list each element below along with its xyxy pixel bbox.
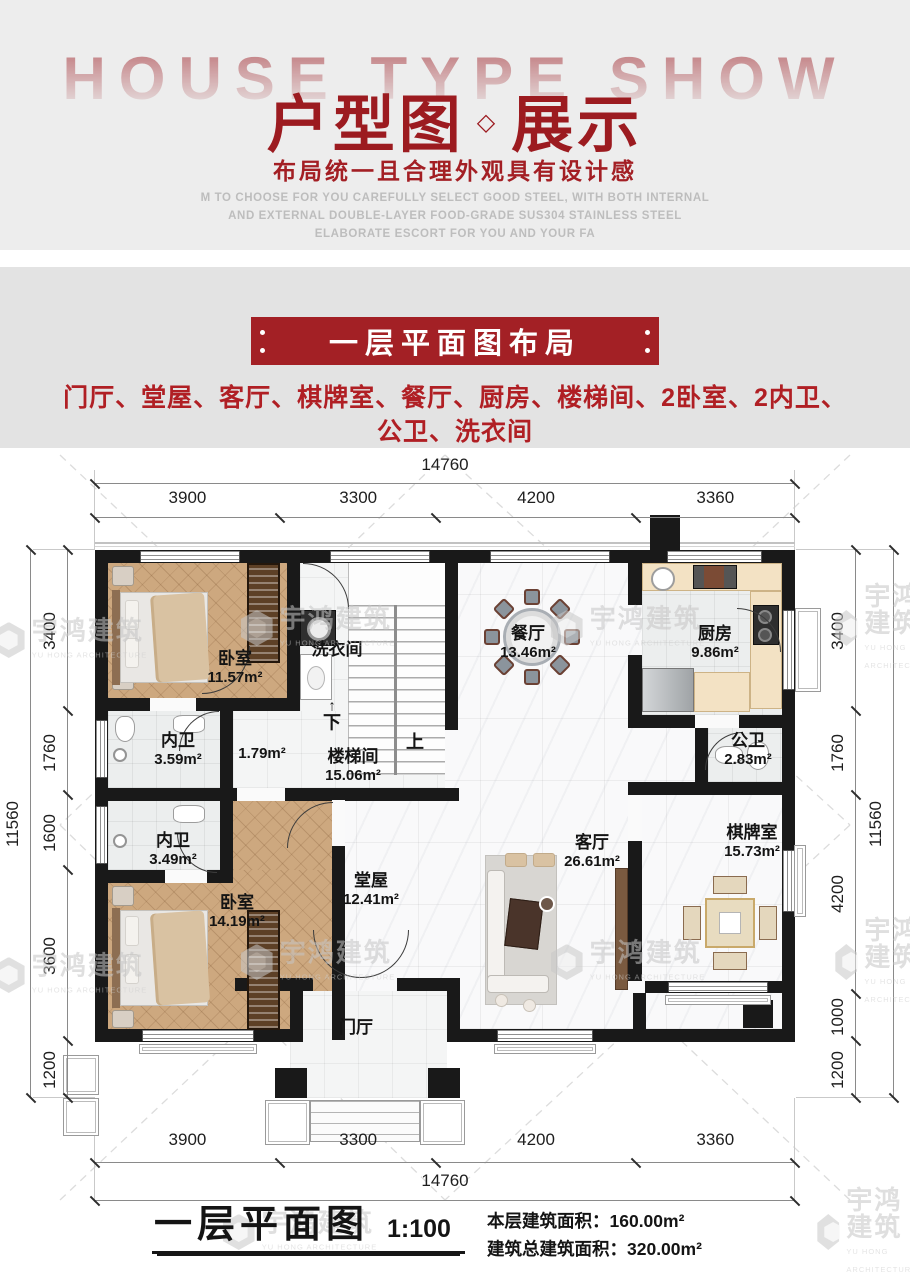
room-name: 卧室 xyxy=(207,649,262,669)
side-table xyxy=(539,896,555,912)
window xyxy=(497,1030,593,1041)
room-label-foyer: 门厅 xyxy=(339,1018,373,1038)
dim-value: 3300 xyxy=(339,1130,377,1150)
extension-line xyxy=(33,549,95,550)
room-area: 9.86m² xyxy=(691,644,739,662)
mahjong-chair xyxy=(759,906,777,940)
dim-line xyxy=(95,1162,795,1163)
room-area: 13.46m² xyxy=(500,644,556,662)
total-area-line: 建筑总建筑面积：320.00m² xyxy=(487,1235,702,1263)
poster-page: HOUSE TYPE SHOW 户型图◇展示 布局统一且合理外观具有设计感 M … xyxy=(0,0,910,1283)
eave-line xyxy=(95,542,795,544)
dim-value: 3300 xyxy=(339,488,377,508)
dim-overall-top: 14760 xyxy=(421,455,468,475)
page-title: 户型图◇展示 xyxy=(0,74,910,164)
mahjong-chair xyxy=(713,952,747,970)
dim-line xyxy=(95,483,795,484)
room-area: 3.59m² xyxy=(154,751,202,769)
window xyxy=(668,982,768,992)
room-label-hall_main: 堂屋12.41m² xyxy=(343,871,399,909)
english-tagline: M TO CHOOSE FOR YOU CAREFULLY SELECT GOO… xyxy=(0,190,910,243)
room-area: 12.41m² xyxy=(343,891,399,909)
bed-headboard xyxy=(112,908,120,1008)
shower-head xyxy=(113,748,127,762)
room-name: 客厅 xyxy=(564,833,620,853)
room-name: 楼梯间 xyxy=(325,747,381,767)
door-opening xyxy=(150,698,196,711)
wall xyxy=(275,1068,307,1098)
blanket xyxy=(150,910,210,1006)
title-part1: 户型图 xyxy=(267,91,465,160)
dim-value: 1200 xyxy=(40,1051,60,1089)
wall xyxy=(445,550,458,730)
watermark-cn: 宇鸿建筑 xyxy=(864,915,910,972)
wall xyxy=(447,991,460,1042)
dim-overall-bottom: 14760 xyxy=(421,1171,468,1191)
kitchen-counter xyxy=(694,672,750,712)
mahjong-chair xyxy=(683,906,701,940)
pillow xyxy=(125,638,139,668)
english-line: M TO CHOOSE FOR YOU CAREFULLY SELECT GOO… xyxy=(0,190,910,208)
up-arrow-icon: ↑ xyxy=(323,699,341,714)
watermark: 宇鸿建筑YU HONG ARCHITECTURE xyxy=(835,917,910,1007)
floor-plan: 卧室11.57m²洗衣间内卫3.59m²1.79m²楼梯间15.06m²餐厅13… xyxy=(95,550,795,1195)
pouf xyxy=(495,994,508,1007)
extension-line xyxy=(796,549,894,550)
mahjong-chair xyxy=(713,876,747,894)
dining-chair xyxy=(524,669,540,685)
diamond-icon: ◇ xyxy=(465,109,511,136)
english-line: AND EXTERNAL DOUBLE-LAYER FOOD-GRADE SUS… xyxy=(0,208,910,226)
laundry-sink-basin xyxy=(307,666,325,690)
hexagon-logo-icon xyxy=(0,957,25,993)
dining-chair xyxy=(564,629,580,645)
english-line: ELABORATE ESCORT FOR YOU AND YOUR FA xyxy=(0,226,910,244)
room-label-stairwell: 楼梯间15.06m² xyxy=(325,747,381,785)
window-sill xyxy=(494,1044,596,1054)
window xyxy=(142,1030,254,1041)
dim-line xyxy=(95,517,795,518)
room-label-living: 客厅26.61m² xyxy=(564,833,620,871)
mahjong-table-center xyxy=(719,912,741,934)
window-sill xyxy=(63,1098,99,1136)
window xyxy=(783,850,794,912)
sofa-chaise xyxy=(487,975,549,993)
room-name: 内卫 xyxy=(149,831,197,851)
dim-value: 4200 xyxy=(517,488,555,508)
room-label-laundry: 洗衣间 xyxy=(312,640,363,660)
banner-dot xyxy=(260,348,265,353)
room-label-bath2: 内卫3.49m² xyxy=(149,831,197,869)
room-label-dining: 餐厅13.46m² xyxy=(500,624,556,662)
pillow xyxy=(125,600,139,630)
subtitle: 布局统一且合理外观具有设计感 xyxy=(0,152,910,186)
dim-value: 4200 xyxy=(517,1130,555,1150)
dim-value: 4200 xyxy=(828,875,848,913)
dim-line xyxy=(30,550,31,1098)
coffee-table xyxy=(504,898,544,950)
dim-value: 3900 xyxy=(169,1130,207,1150)
room-list-line2: 公卫、洗衣间 xyxy=(0,412,910,448)
room-name: 餐厅 xyxy=(500,624,556,644)
banner-dot xyxy=(645,330,650,335)
room-label-bath1: 内卫3.59m² xyxy=(154,731,202,769)
room-area: 15.73m² xyxy=(724,843,780,861)
fridge xyxy=(642,668,694,712)
wall xyxy=(628,550,642,605)
room-label-bedroom1: 卧室11.57m² xyxy=(207,649,262,687)
door-opening xyxy=(165,870,207,883)
room-name: 棋牌室 xyxy=(724,823,780,843)
title-part2: 展示 xyxy=(511,91,643,160)
window xyxy=(490,551,610,562)
plan-title: 一层平面图 xyxy=(154,1206,369,1244)
room-area: 3.49m² xyxy=(149,851,197,869)
window-sill xyxy=(63,1055,99,1095)
room-name: 内卫 xyxy=(154,731,202,751)
banner-dot xyxy=(260,330,265,335)
room-name: 厨房 xyxy=(691,624,739,644)
door-opening xyxy=(695,715,739,728)
door-opening xyxy=(237,788,285,801)
dim-line xyxy=(855,550,856,1098)
eave-line xyxy=(95,546,795,547)
wall xyxy=(633,993,646,1029)
pillow xyxy=(125,916,139,946)
dim-value: 3400 xyxy=(40,612,60,650)
blanket xyxy=(150,592,210,683)
banner-title: 一层平面图布局 xyxy=(329,320,581,362)
watermark-en: YU HONG ARCHITECTURE xyxy=(864,977,910,1004)
tv-cabinet xyxy=(615,868,628,990)
wall xyxy=(628,782,795,795)
door-opening xyxy=(628,795,642,841)
dim-value: 3400 xyxy=(828,612,848,650)
area-summary: 本层建筑面积：160.00m² 建筑总建筑面积：320.00m² xyxy=(487,1207,702,1263)
room-list-line1: 门厅、堂屋、客厅、棋牌室、餐厅、厨房、楼梯间、2卧室、2内卫、 xyxy=(0,378,910,414)
room-name: 门厅 xyxy=(339,1018,373,1038)
wall xyxy=(628,655,642,715)
nightstand xyxy=(112,1010,134,1028)
room-name: 洗衣间 xyxy=(312,640,363,660)
floor-foyer xyxy=(290,991,447,1098)
watermark-cn: 宇鸿建筑 xyxy=(864,581,910,638)
window xyxy=(330,551,430,562)
room-area: 1.79m² xyxy=(238,745,286,763)
stair-down-label: ↑下 xyxy=(323,699,341,732)
room-name: 堂屋 xyxy=(343,871,399,891)
watermark-en: YU HONG ARCHITECTURE xyxy=(864,643,910,670)
room-label-chess: 棋牌室15.73m² xyxy=(724,823,780,861)
window-sill xyxy=(795,608,821,692)
room-area: 14.19m² xyxy=(209,913,265,931)
room-area: 15.06m² xyxy=(325,767,381,785)
section-banner: 一层平面图布局 xyxy=(251,317,659,365)
room-label-bedroom2: 卧室14.19m² xyxy=(209,893,265,931)
banner-dot xyxy=(645,348,650,353)
pouf xyxy=(523,999,536,1012)
room-area: 2.83m² xyxy=(724,751,772,769)
extension-line xyxy=(796,1097,894,1098)
nightstand xyxy=(112,566,134,586)
watermark-en: YU HONG ARCHITECTURE xyxy=(846,1247,910,1274)
window xyxy=(96,720,107,778)
plan-scale: 1:100 xyxy=(387,1217,451,1244)
plan-title-block: 一层平面图 1:100 xyxy=(152,1206,465,1254)
wall xyxy=(220,711,233,788)
bed-headboard xyxy=(112,590,120,685)
dim-value: 3360 xyxy=(696,1130,734,1150)
wall xyxy=(695,728,708,782)
wall xyxy=(397,978,460,991)
hexagon-logo-icon xyxy=(817,1214,839,1250)
dim-line xyxy=(893,550,894,1098)
dim-value: 3600 xyxy=(40,937,60,975)
room-label-hall_small: 1.79m² xyxy=(238,745,286,763)
hexagon-logo-icon xyxy=(0,622,25,658)
window-sill xyxy=(139,1044,257,1054)
dim-value: 3900 xyxy=(169,488,207,508)
shower-head xyxy=(113,834,127,848)
watermark: 宇鸿建筑YU HONG ARCHITECTURE xyxy=(817,1187,910,1277)
wall xyxy=(290,991,303,1042)
window xyxy=(140,551,240,562)
dining-chair xyxy=(484,629,500,645)
sink xyxy=(173,805,205,823)
dining-chair xyxy=(524,589,540,605)
wall xyxy=(287,550,300,698)
dim-value: 1200 xyxy=(828,1051,848,1089)
floor-cushion xyxy=(505,853,527,867)
nightstand xyxy=(112,886,134,906)
door-opening xyxy=(332,800,345,846)
stair-up-label: 上 xyxy=(406,733,424,751)
dim-value: 1600 xyxy=(40,814,60,852)
dim-value: 1000 xyxy=(828,998,848,1036)
wall xyxy=(95,698,300,711)
window xyxy=(96,806,107,864)
watermark-cn: 宇鸿建筑 xyxy=(846,1185,902,1242)
room-area: 11.57m² xyxy=(207,669,262,687)
washer-drum xyxy=(307,617,331,641)
window xyxy=(667,551,762,562)
dim-value: 1760 xyxy=(40,734,60,772)
dim-line xyxy=(95,1200,795,1201)
dim-overall-right: 11560 xyxy=(866,801,886,847)
toilet xyxy=(115,716,135,742)
dim-value: 3360 xyxy=(696,488,734,508)
room-label-kitchen: 厨房9.86m² xyxy=(691,624,739,662)
room-name: 卧室 xyxy=(209,893,265,913)
room-name: 公卫 xyxy=(724,731,772,751)
wall xyxy=(650,515,680,550)
porch-column-base xyxy=(420,1100,465,1145)
dim-overall-left: 11560 xyxy=(3,801,23,847)
dim-value: 1760 xyxy=(828,734,848,772)
window-sill xyxy=(794,845,806,917)
room-label-bath_public: 公卫2.83m² xyxy=(724,731,772,769)
wall xyxy=(220,801,233,870)
porch-column-base xyxy=(265,1100,310,1145)
floor-area-line: 本层建筑面积：160.00m² xyxy=(487,1207,702,1235)
pillow xyxy=(125,954,139,984)
range-hood xyxy=(693,565,737,589)
stair-divider xyxy=(394,605,397,775)
floor-cushion xyxy=(533,853,555,867)
kitchen-sink xyxy=(651,567,675,591)
dim-line xyxy=(67,550,68,1098)
sofa xyxy=(487,870,505,988)
window xyxy=(783,610,794,690)
window-sill xyxy=(665,995,771,1005)
wall xyxy=(428,1068,460,1098)
room-area: 26.61m² xyxy=(564,853,620,871)
